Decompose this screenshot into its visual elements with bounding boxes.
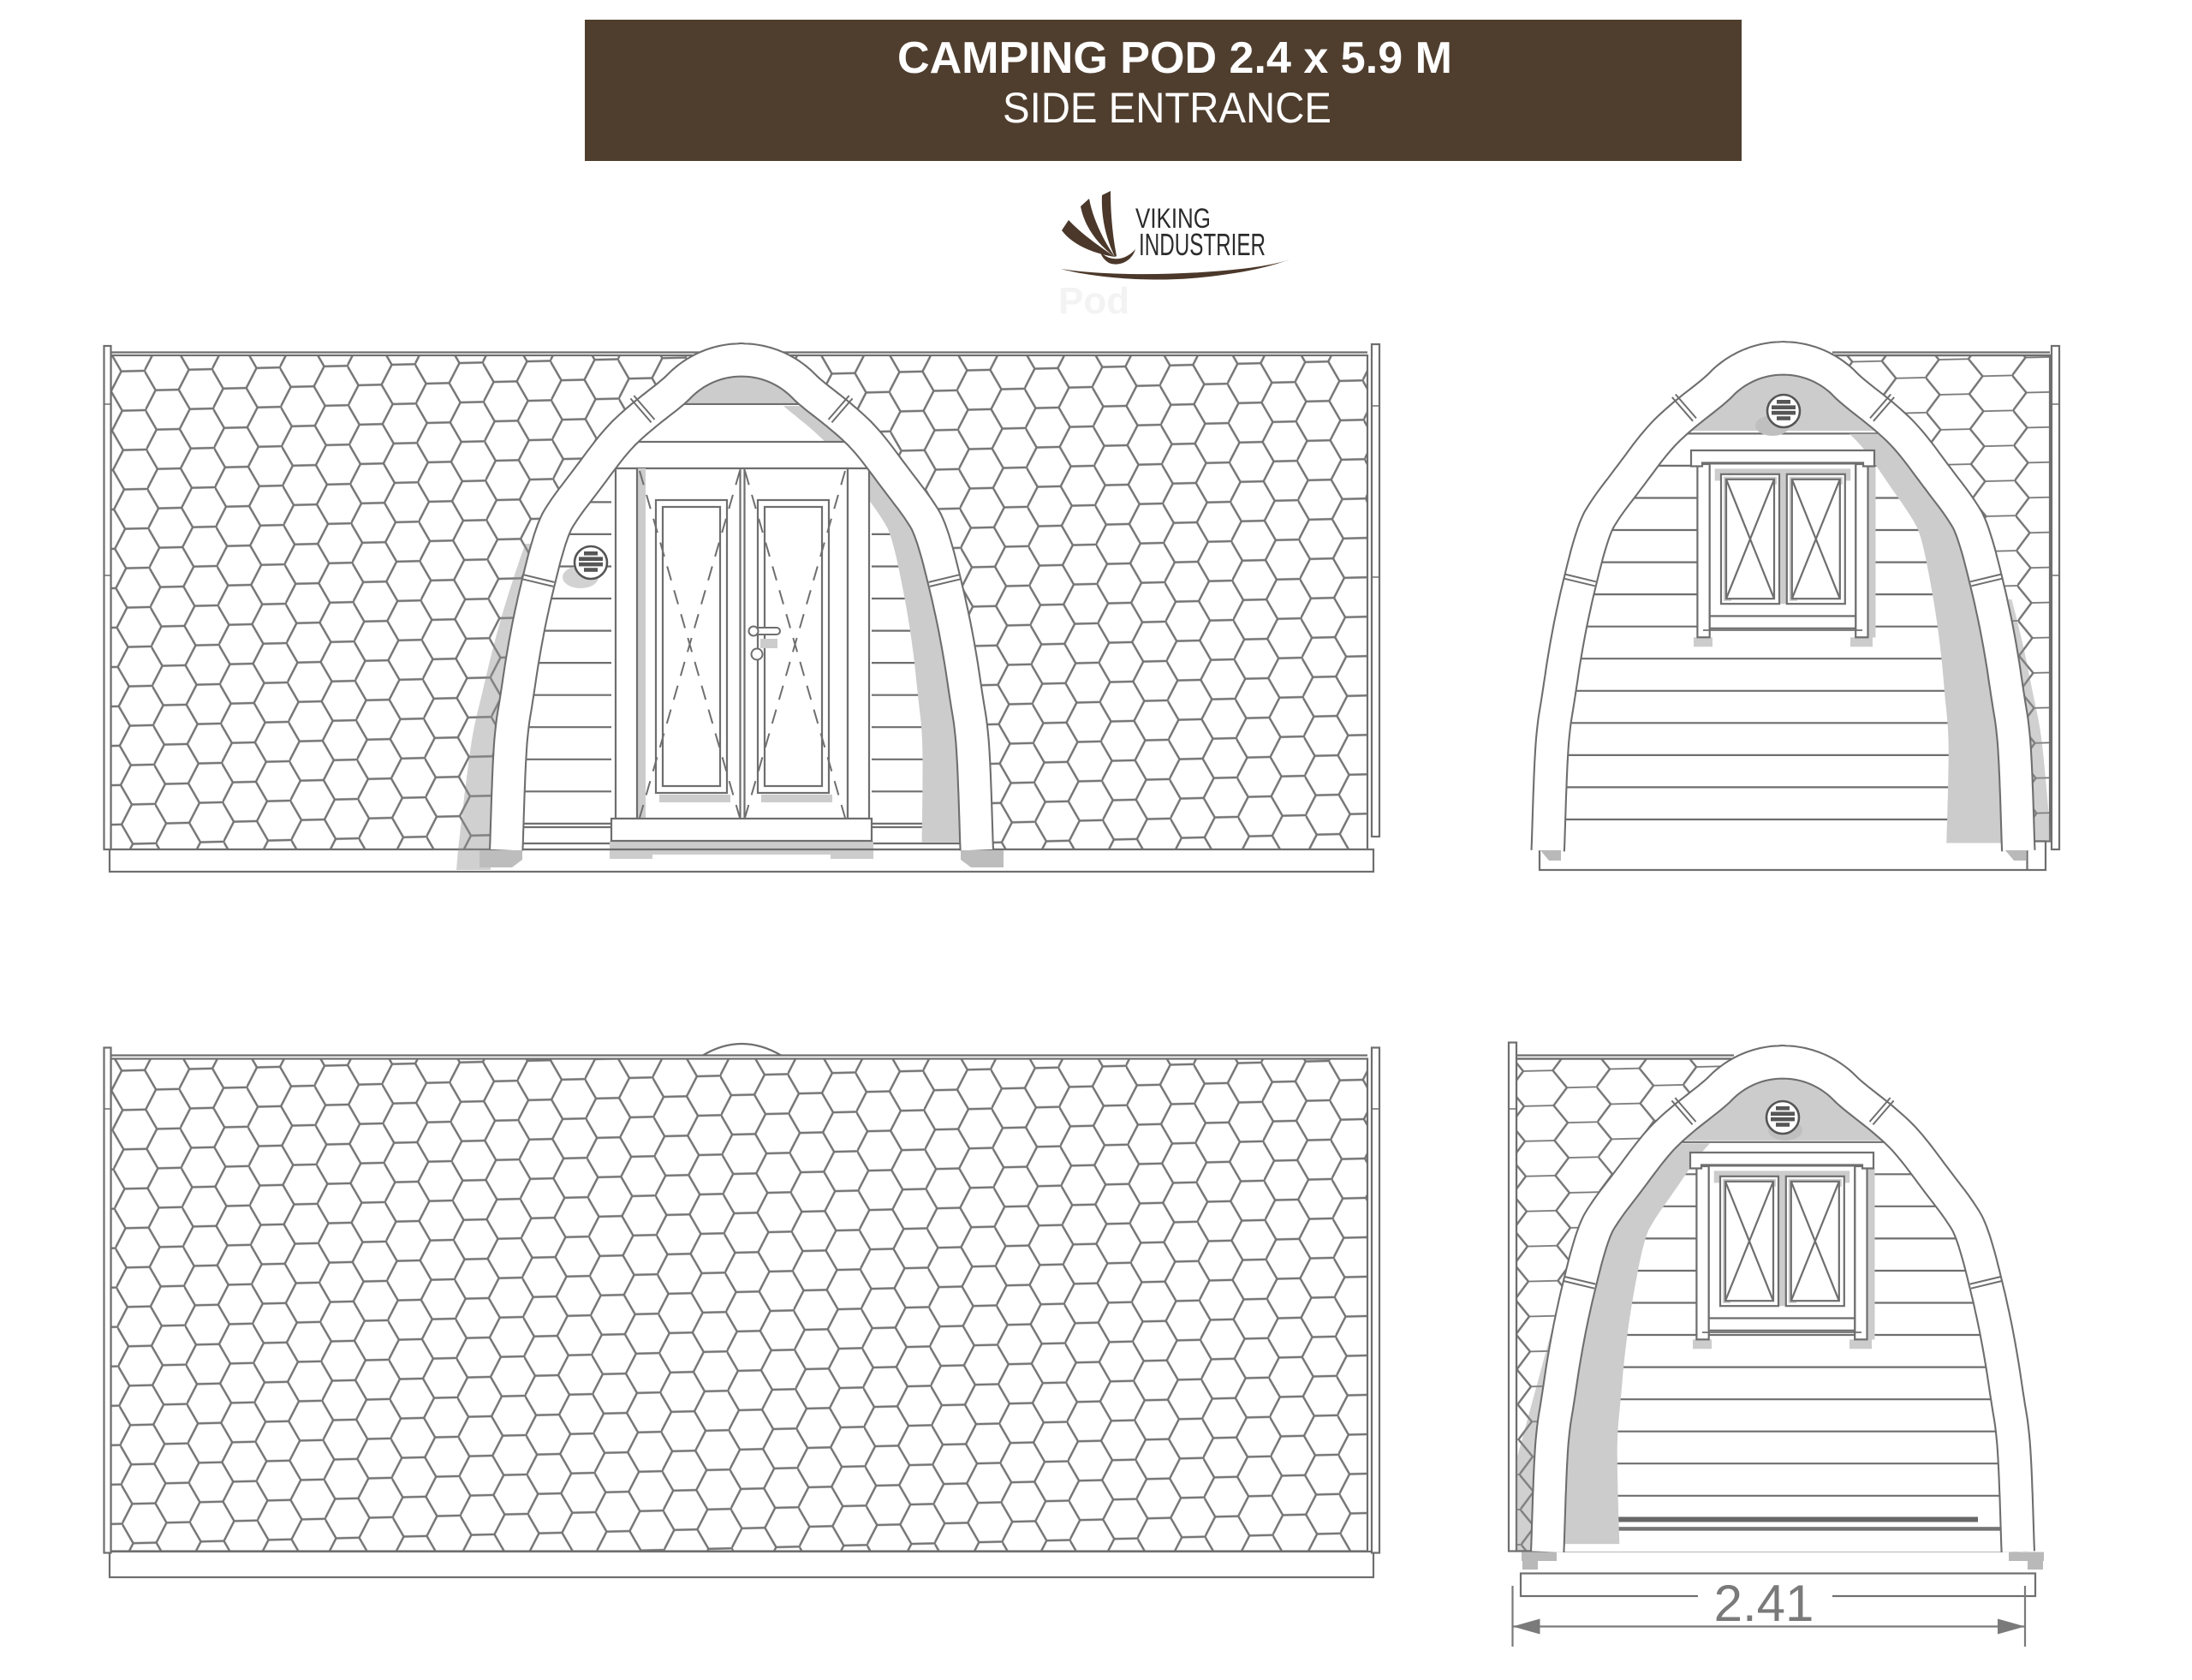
svg-text:Pod: Pod — [1058, 280, 1129, 322]
svg-text:SIDE ENTRANCE: SIDE ENTRANCE — [1003, 84, 1331, 132]
svg-text:2.41: 2.41 — [1714, 1575, 1814, 1632]
svg-text:INDUSTRIER: INDUSTRIER — [1139, 227, 1266, 262]
svg-text:CAMPING POD 2.4 x 5.9 M: CAMPING POD 2.4 x 5.9 M — [897, 33, 1452, 83]
